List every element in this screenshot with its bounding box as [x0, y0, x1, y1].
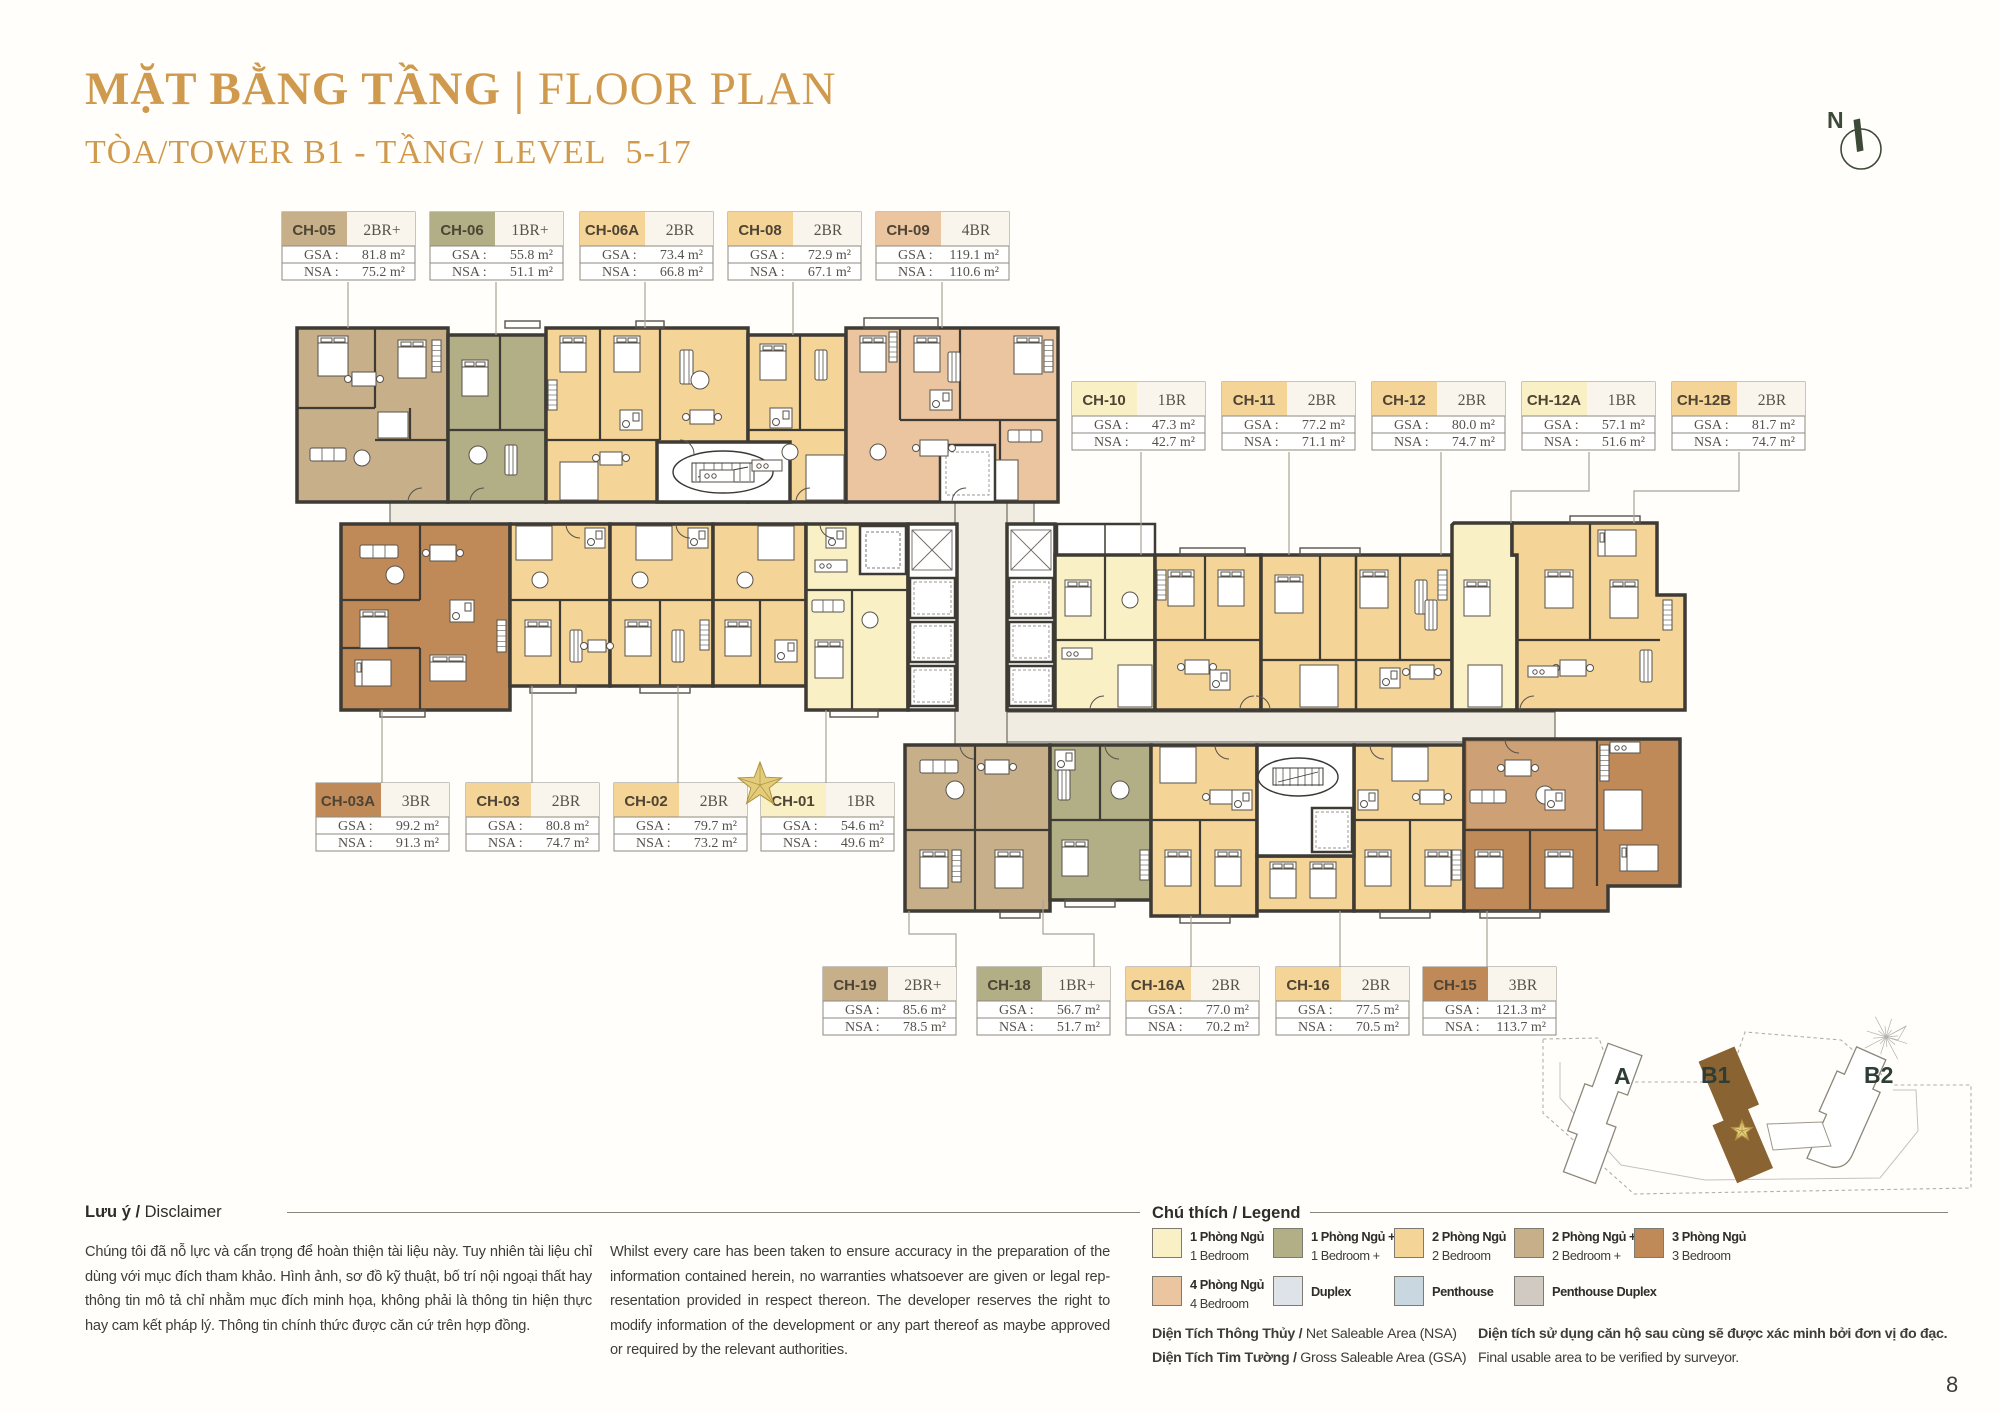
svg-text:80.8 m²: 80.8 m²	[546, 819, 589, 834]
svg-text:GSA :: GSA :	[1148, 1003, 1183, 1018]
svg-text:75.2 m²: 75.2 m²	[362, 265, 405, 280]
svg-text:CH-18: CH-18	[987, 977, 1030, 994]
svg-text:2BR: 2BR	[1212, 977, 1241, 994]
svg-text:4BR: 4BR	[962, 222, 991, 239]
svg-text:49.6 m²: 49.6 m²	[841, 836, 884, 851]
svg-text:CH-01: CH-01	[771, 793, 814, 810]
svg-text:B2: B2	[1864, 1062, 1893, 1088]
svg-text:NSA :: NSA :	[1544, 435, 1579, 450]
svg-text:71.1 m²: 71.1 m²	[1302, 435, 1345, 450]
svg-text:54.6 m²: 54.6 m²	[841, 819, 884, 834]
svg-text:CH-05: CH-05	[292, 222, 335, 239]
svg-text:91.3 m²: 91.3 m²	[396, 836, 439, 851]
svg-text:51.6 m²: 51.6 m²	[1602, 435, 1645, 450]
svg-text:B1: B1	[1701, 1062, 1731, 1088]
svg-text:GSA :: GSA :	[845, 1003, 880, 1018]
svg-text:2BR: 2BR	[666, 222, 695, 239]
svg-text:CH-15: CH-15	[1433, 977, 1476, 994]
svg-text:79.7 m²: 79.7 m²	[694, 819, 737, 834]
svg-text:77.2 m²: 77.2 m²	[1302, 418, 1345, 433]
svg-text:GSA :: GSA :	[750, 248, 785, 263]
svg-text:CH-16A: CH-16A	[1131, 977, 1185, 994]
svg-text:NSA :: NSA :	[636, 836, 671, 851]
svg-text:42.7 m²: 42.7 m²	[1152, 435, 1195, 450]
svg-text:2BR: 2BR	[552, 793, 581, 810]
svg-text:CH-10: CH-10	[1082, 392, 1125, 409]
svg-text:NSA :: NSA :	[1148, 1020, 1183, 1035]
svg-text:NSA :: NSA :	[304, 265, 339, 280]
svg-text:GSA :: GSA :	[1298, 1003, 1333, 1018]
svg-text:74.7 m²: 74.7 m²	[1752, 435, 1795, 450]
svg-text:3BR: 3BR	[402, 793, 431, 810]
svg-text:73.2 m²: 73.2 m²	[694, 836, 737, 851]
svg-text:NSA :: NSA :	[750, 265, 785, 280]
svg-text:2BR+: 2BR+	[363, 222, 400, 239]
svg-text:77.5 m²: 77.5 m²	[1356, 1003, 1399, 1018]
svg-text:NSA :: NSA :	[898, 265, 933, 280]
svg-text:NSA :: NSA :	[1298, 1020, 1333, 1035]
svg-text:GSA :: GSA :	[1394, 418, 1429, 433]
svg-text:74.7 m²: 74.7 m²	[1452, 435, 1495, 450]
svg-text:NSA :: NSA :	[1394, 435, 1429, 450]
svg-text:51.7 m²: 51.7 m²	[1057, 1020, 1100, 1035]
svg-text:NSA :: NSA :	[783, 836, 818, 851]
svg-text:NSA :: NSA :	[999, 1020, 1034, 1035]
svg-text:2BR: 2BR	[1308, 392, 1337, 409]
svg-text:NSA :: NSA :	[488, 836, 523, 851]
svg-text:A: A	[1614, 1063, 1631, 1089]
svg-text:80.0 m²: 80.0 m²	[1452, 418, 1495, 433]
svg-text:78.5 m²: 78.5 m²	[903, 1020, 946, 1035]
svg-text:119.1 m²: 119.1 m²	[949, 248, 999, 263]
svg-text:CH-06A: CH-06A	[585, 222, 639, 239]
svg-text:73.4 m²: 73.4 m²	[660, 248, 703, 263]
svg-text:GSA :: GSA :	[338, 819, 373, 834]
svg-text:74.7 m²: 74.7 m²	[546, 836, 589, 851]
svg-text:66.8 m²: 66.8 m²	[660, 265, 703, 280]
svg-text:1BR+: 1BR+	[1058, 977, 1095, 994]
svg-text:1BR+: 1BR+	[511, 222, 548, 239]
svg-text:85.6 m²: 85.6 m²	[903, 1003, 946, 1018]
svg-text:NSA :: NSA :	[1694, 435, 1729, 450]
svg-text:CH-02: CH-02	[624, 793, 667, 810]
svg-text:CH-03: CH-03	[476, 793, 519, 810]
svg-text:47.3 m²: 47.3 m²	[1152, 418, 1195, 433]
svg-text:N: N	[1827, 107, 1844, 133]
svg-text:CH-06: CH-06	[440, 222, 483, 239]
svg-text:51.1 m²: 51.1 m²	[510, 265, 553, 280]
svg-text:113.7 m²: 113.7 m²	[1496, 1020, 1546, 1035]
svg-text:NSA :: NSA :	[1445, 1020, 1480, 1035]
svg-text:2BR+: 2BR+	[904, 977, 941, 994]
svg-text:GSA :: GSA :	[783, 819, 818, 834]
svg-text:CH-03A: CH-03A	[321, 793, 375, 810]
svg-text:GSA :: GSA :	[1544, 418, 1579, 433]
svg-text:CH-12B: CH-12B	[1677, 392, 1731, 409]
svg-text:110.6 m²: 110.6 m²	[949, 265, 999, 280]
svg-text:GSA :: GSA :	[602, 248, 637, 263]
svg-text:67.1 m²: 67.1 m²	[808, 265, 851, 280]
svg-text:2BR: 2BR	[814, 222, 843, 239]
svg-text:GSA :: GSA :	[1244, 418, 1279, 433]
svg-text:GSA :: GSA :	[452, 248, 487, 263]
svg-text:55.8 m²: 55.8 m²	[510, 248, 553, 263]
svg-text:GSA :: GSA :	[636, 819, 671, 834]
svg-text:CH-19: CH-19	[833, 977, 876, 994]
svg-text:NSA :: NSA :	[1094, 435, 1129, 450]
svg-text:81.7 m²: 81.7 m²	[1752, 418, 1795, 433]
svg-text:NSA :: NSA :	[1244, 435, 1279, 450]
svg-text:NSA :: NSA :	[845, 1020, 880, 1035]
svg-text:2BR: 2BR	[1362, 977, 1391, 994]
svg-text:GSA :: GSA :	[898, 248, 933, 263]
svg-text:GSA :: GSA :	[488, 819, 523, 834]
svg-text:NSA :: NSA :	[602, 265, 637, 280]
svg-text:70.2 m²: 70.2 m²	[1206, 1020, 1249, 1035]
svg-text:3BR: 3BR	[1509, 977, 1538, 994]
svg-text:GSA :: GSA :	[304, 248, 339, 263]
svg-text:2BR: 2BR	[1758, 392, 1787, 409]
svg-text:77.0 m²: 77.0 m²	[1206, 1003, 1249, 1018]
svg-text:2BR: 2BR	[1458, 392, 1487, 409]
svg-text:CH-12A: CH-12A	[1527, 392, 1581, 409]
svg-text:72.9 m²: 72.9 m²	[808, 248, 851, 263]
svg-text:NSA :: NSA :	[452, 265, 487, 280]
svg-text:CH-11: CH-11	[1233, 392, 1276, 409]
svg-text:1BR: 1BR	[1608, 392, 1637, 409]
svg-text:81.8 m²: 81.8 m²	[362, 248, 405, 263]
svg-text:NSA :: NSA :	[338, 836, 373, 851]
svg-text:1BR: 1BR	[847, 793, 876, 810]
svg-text:70.5 m²: 70.5 m²	[1356, 1020, 1399, 1035]
svg-text:GSA :: GSA :	[1094, 418, 1129, 433]
svg-text:CH-12: CH-12	[1382, 392, 1425, 409]
svg-text:121.3 m²: 121.3 m²	[1496, 1003, 1546, 1018]
svg-text:99.2 m²: 99.2 m²	[396, 819, 439, 834]
svg-text:2BR: 2BR	[700, 793, 729, 810]
svg-text:CH-09: CH-09	[886, 222, 929, 239]
svg-text:GSA :: GSA :	[1694, 418, 1729, 433]
svg-text:57.1 m²: 57.1 m²	[1602, 418, 1645, 433]
svg-text:1BR: 1BR	[1158, 392, 1187, 409]
svg-text:GSA :: GSA :	[1445, 1003, 1480, 1018]
svg-text:CH-08: CH-08	[738, 222, 781, 239]
svg-text:CH-16: CH-16	[1286, 977, 1329, 994]
svg-text:GSA :: GSA :	[999, 1003, 1034, 1018]
svg-text:56.7 m²: 56.7 m²	[1057, 1003, 1100, 1018]
